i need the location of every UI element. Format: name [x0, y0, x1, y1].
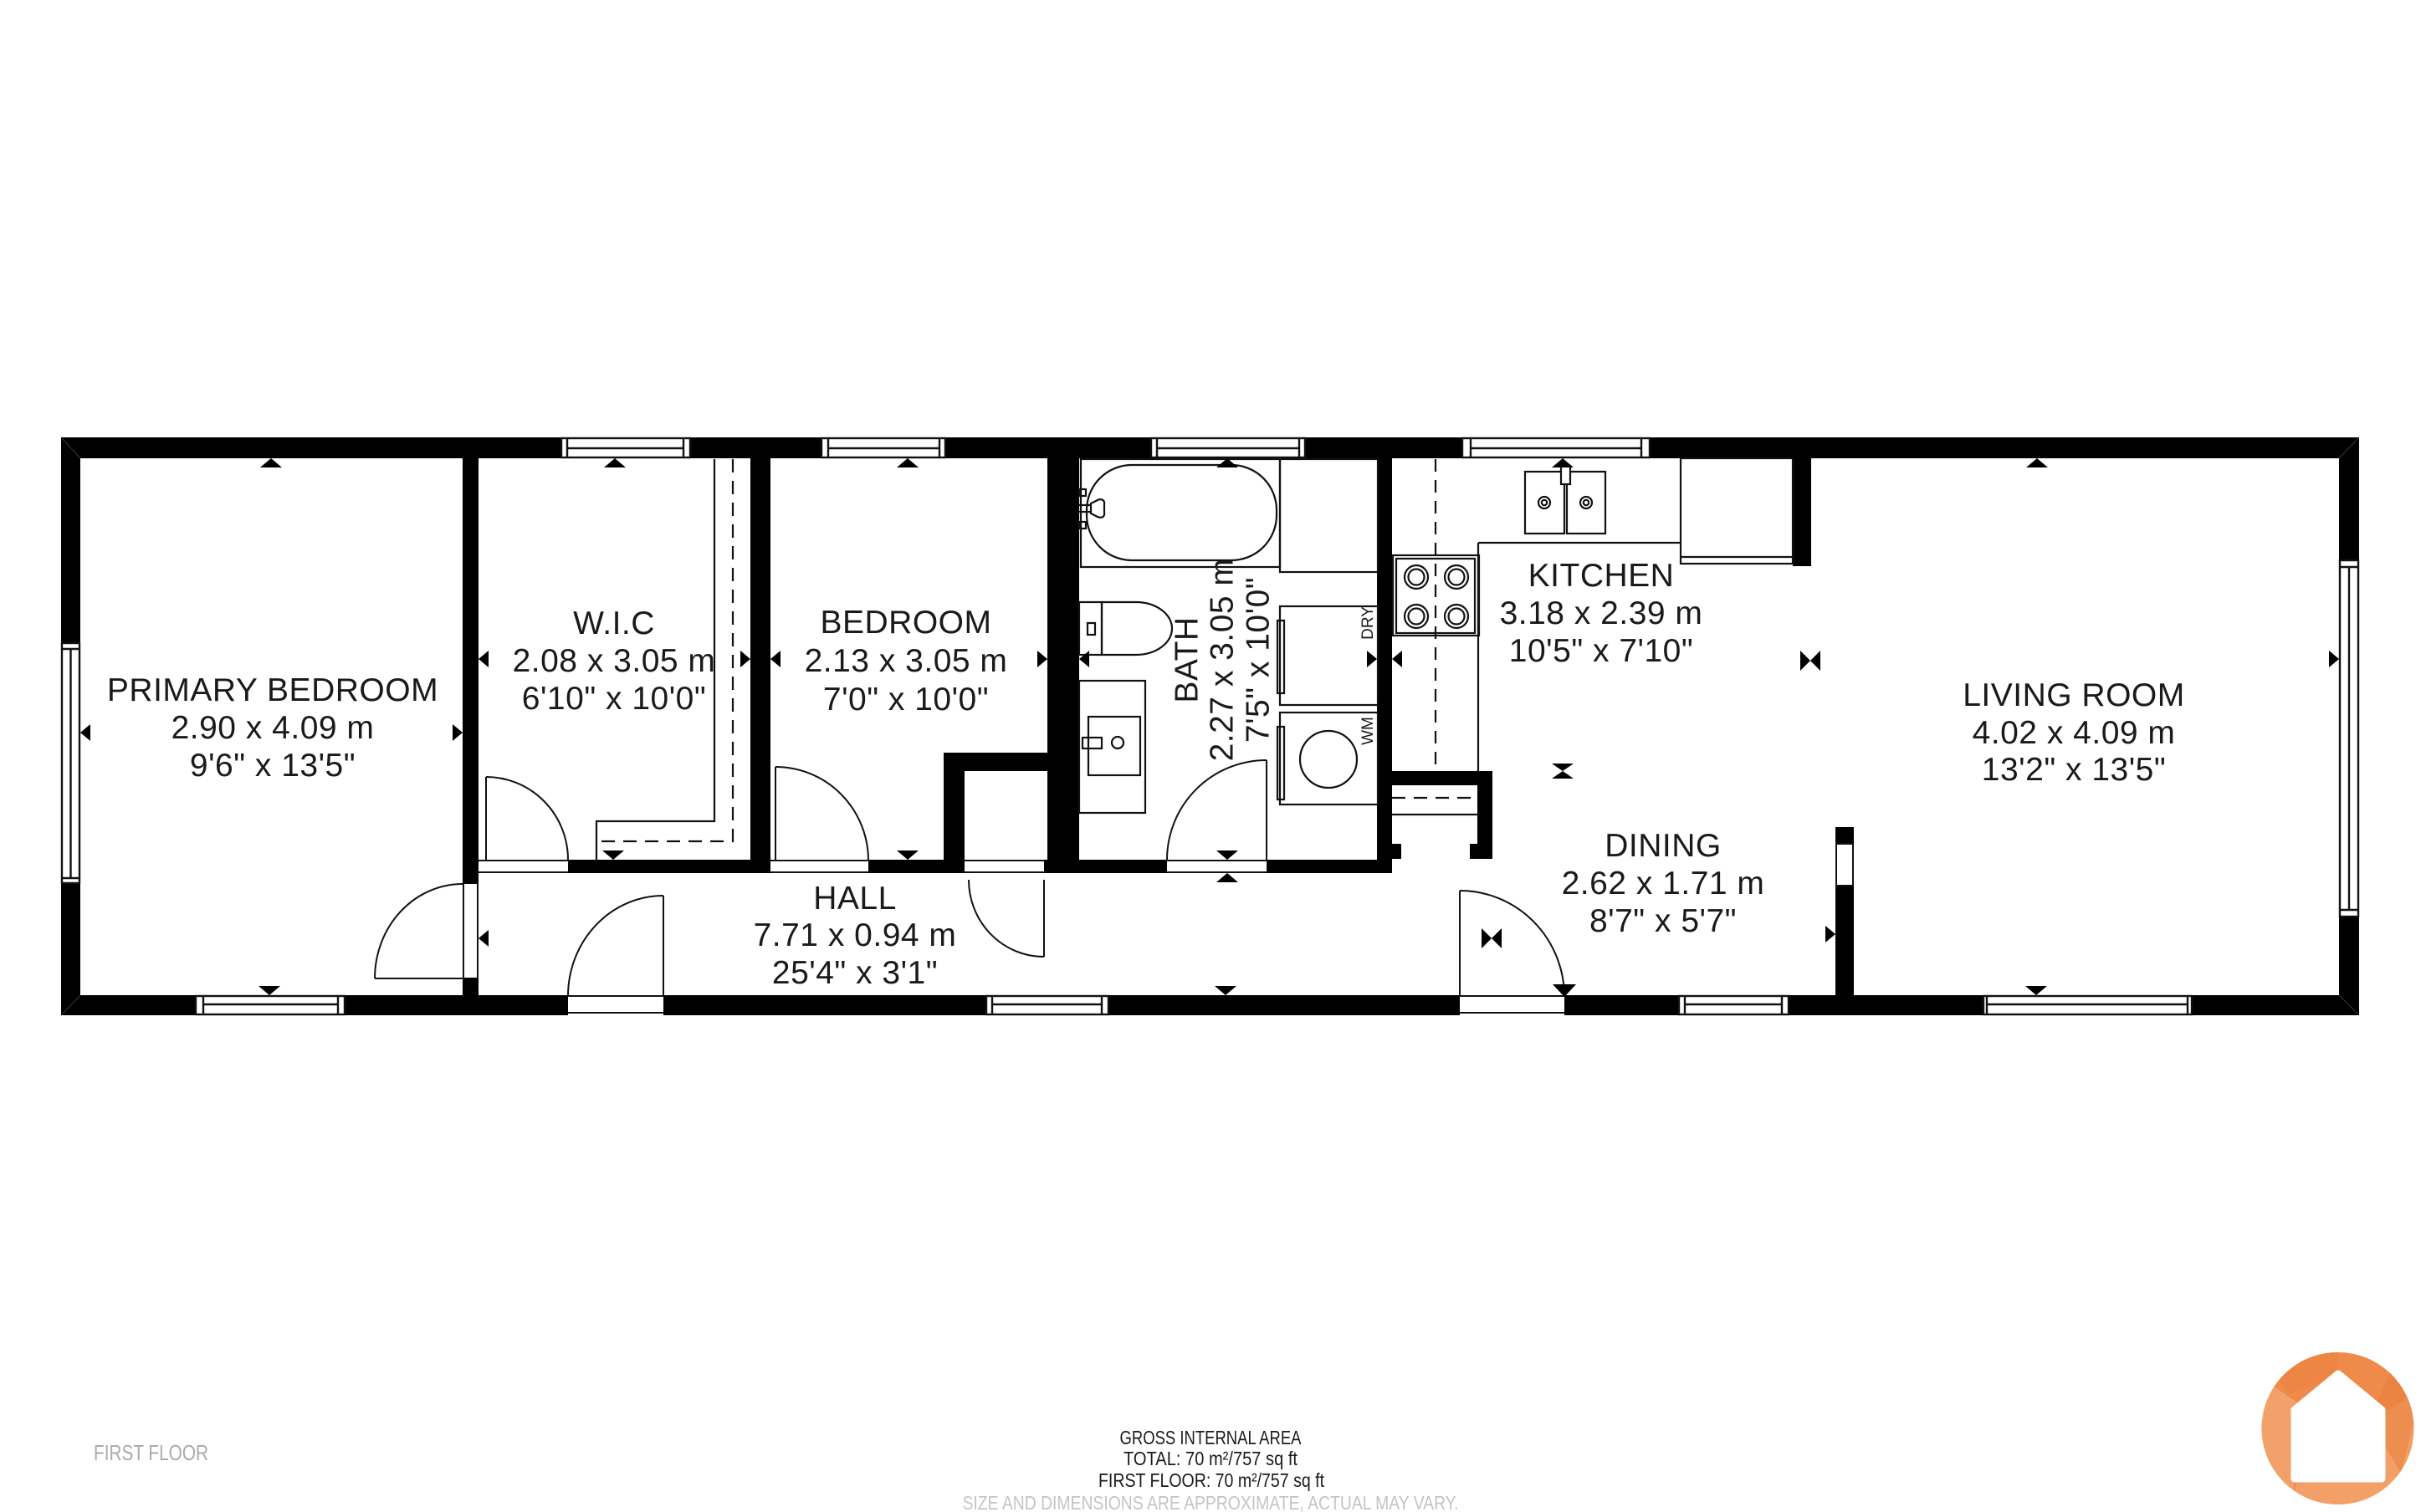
svg-text:SIZE AND DIMENSIONS ARE APPROX: SIZE AND DIMENSIONS ARE APPROXIMATE, ACT…	[963, 1492, 1459, 1512]
svg-text:6'10" x 10'0": 6'10" x 10'0"	[522, 681, 706, 717]
svg-text:7'5" x 10'0": 7'5" x 10'0"	[1241, 577, 1277, 743]
svg-text:2.08 x 3.05 m: 2.08 x 3.05 m	[513, 643, 716, 679]
svg-text:2.90 x 4.09 m: 2.90 x 4.09 m	[171, 710, 375, 746]
svg-text:FIRST FLOOR: FIRST FLOOR	[94, 1440, 208, 1465]
svg-text:4.02 x 4.09 m: 4.02 x 4.09 m	[1973, 715, 2176, 751]
svg-text:BEDROOM: BEDROOM	[820, 605, 991, 641]
svg-text:WM: WM	[1359, 717, 1377, 745]
svg-text:25'4" x 3'1": 25'4" x 3'1"	[772, 955, 938, 991]
svg-text:TOTAL: 70 m²/757 sq ft: TOTAL: 70 m²/757 sq ft	[1123, 1448, 1298, 1469]
svg-text:7.71 x 0.94 m: 7.71 x 0.94 m	[754, 917, 957, 953]
svg-text:8'7" x 5'7": 8'7" x 5'7"	[1589, 903, 1737, 939]
svg-text:KITCHEN: KITCHEN	[1528, 558, 1675, 594]
svg-text:DRY: DRY	[1359, 606, 1377, 640]
svg-text:7'0" x 10'0": 7'0" x 10'0"	[823, 682, 989, 718]
svg-text:3.18 x 2.39 m: 3.18 x 2.39 m	[1500, 595, 1703, 631]
svg-text:2.27 x 3.05 m: 2.27 x 3.05 m	[1205, 559, 1241, 762]
svg-text:HALL: HALL	[813, 881, 897, 917]
svg-text:10'5" x 7'10": 10'5" x 7'10"	[1509, 633, 1693, 669]
svg-text:BATH: BATH	[1170, 616, 1205, 702]
svg-text:FIRST FLOOR: 70 m²/757 sq ft: FIRST FLOOR: 70 m²/757 sq ft	[1098, 1469, 1325, 1491]
svg-text:W.I.C: W.I.C	[573, 605, 655, 641]
svg-text:2.62 x 1.71 m: 2.62 x 1.71 m	[1562, 866, 1765, 902]
svg-text:LIVING ROOM: LIVING ROOM	[1963, 677, 2185, 713]
svg-text:13'2" x 13'5": 13'2" x 13'5"	[1982, 752, 2166, 788]
svg-text:2.13 x 3.05 m: 2.13 x 3.05 m	[805, 643, 1008, 679]
svg-text:GROSS INTERNAL AREA: GROSS INTERNAL AREA	[1120, 1427, 1303, 1448]
svg-text:DINING: DINING	[1605, 828, 1722, 864]
svg-text:PRIMARY BEDROOM: PRIMARY BEDROOM	[107, 672, 438, 708]
svg-text:9'6" x 13'5": 9'6" x 13'5"	[190, 748, 356, 784]
